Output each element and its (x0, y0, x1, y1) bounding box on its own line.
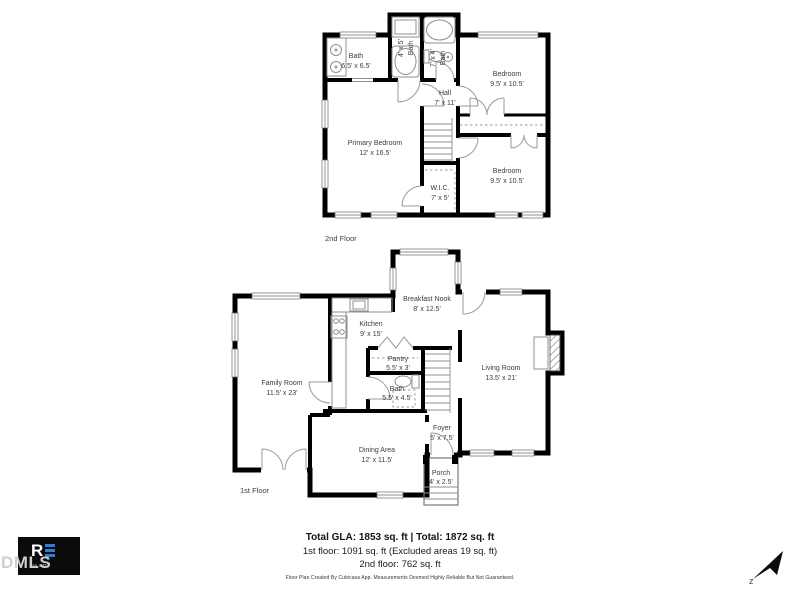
room-dims: 11.5' x 23' (267, 390, 298, 397)
room-dims: 5.5' x 4.5' (382, 395, 412, 402)
room-label-wic: W.I.C. 7' x 5' (430, 185, 449, 202)
first-floor-label: 1st Floor (240, 486, 270, 495)
room-name: Kitchen (359, 321, 382, 328)
room-label-kitchen: Kitchen 9' x 15' (359, 321, 382, 338)
room-dims: 12' x 11.5' (362, 457, 393, 464)
second-floor-plan: Bath 6.5' x 6.5' 4' x 5' Bath 7' x 4' Ba… (322, 15, 548, 243)
area-summary: Total GLA: 1853 sq. ft | Total: 1872 sq.… (0, 531, 800, 581)
room-name: Bath (408, 41, 415, 56)
room-dims: 9' x 15' (360, 331, 382, 338)
room-name: Primary Bedroom (348, 140, 403, 147)
room-name: Bedroom (493, 168, 522, 175)
room-label-pantry: Pantry 5.5' x 3' (386, 356, 410, 372)
room-name: Dining Area (359, 447, 395, 454)
first-floor-plan: Breakfast Nook 8' x 12.5' Kitchen 9' x 1… (232, 249, 562, 505)
bath-pocket-door (352, 79, 373, 82)
room-label-living-room: Living Room 13.5' x 21' (482, 365, 521, 382)
room-dims: 9.5' x 10.5' (490, 81, 523, 88)
room-label-primary-bedroom: Primary Bedroom 12' x 16.5' (348, 140, 403, 157)
room-name: Porch (432, 470, 450, 477)
first-floor-area-line: 1st floor: 1091 sq. ft (Excluded areas 1… (0, 545, 800, 558)
room-label-bath-first: Bath 5.5' x 4.5' (382, 386, 412, 402)
room-dims: 8' x 12.5' (413, 306, 441, 313)
room-name: Bedroom (493, 71, 522, 78)
floorplan-page: Bath 6.5' x 6.5' 4' x 5' Bath 7' x 4' Ba… (0, 0, 800, 600)
room-label-breakfast-nook: Breakfast Nook 8' x 12.5' (403, 296, 451, 313)
second-floor-area-line: 2nd floor: 762 sq. ft (0, 558, 800, 571)
room-label-family-room: Family Room 11.5' x 23' (261, 380, 302, 397)
room-dims: 6.5' x 6.5' (341, 63, 371, 70)
room-name: Living Room (482, 365, 521, 372)
room-name: Breakfast Nook (403, 296, 451, 303)
room-dims: 5.5' x 3' (386, 365, 410, 372)
room-dims: 4' x 5' (398, 39, 405, 57)
room-label-hall: Hall 7' x 11' (434, 90, 455, 107)
second-floor-stairs (424, 118, 452, 162)
mls-watermark: DMLS (1, 553, 51, 573)
room-name: Bath (440, 51, 447, 66)
room-label-bath-small-left: 4' x 5' Bath (398, 39, 415, 57)
room-name: W.I.C. (430, 185, 449, 192)
family-door-opening (261, 467, 307, 473)
room-dims: 7' x 4' (430, 49, 437, 67)
room-name: Foyer (433, 425, 452, 432)
room-label-porch: Porch 4' x 2.5' (429, 470, 453, 486)
room-label-bedroom-bottom: Bedroom 9.5' x 10.5' (490, 168, 523, 185)
room-name: Hall (439, 90, 452, 97)
room-dims: 9.5' x 10.5' (490, 178, 523, 185)
nook-living-opening (462, 289, 486, 295)
second-floor-label: 2nd Floor (325, 234, 357, 243)
disclaimer-text: Floor Plan Created By Cubicasa App. Meas… (0, 575, 800, 581)
room-label-dining-area: Dining Area 12' x 11.5' (359, 447, 395, 464)
fireplace (534, 335, 560, 371)
room-dims: 13.5' x 21' (485, 375, 516, 382)
room-label-bedroom-top: Bedroom 9.5' x 10.5' (490, 71, 523, 88)
room-name: Pantry (388, 356, 409, 363)
room-name: Bath (390, 386, 405, 393)
room-dims: 4' x 2.5' (429, 479, 453, 486)
total-gla-line: Total GLA: 1853 sq. ft | Total: 1872 sq.… (0, 531, 800, 545)
room-dims: 7' x 5' (431, 195, 449, 202)
floor-plan-canvas: Bath 6.5' x 6.5' 4' x 5' Bath 7' x 4' Ba… (0, 0, 800, 600)
room-dims: 5' x 7.5' (430, 435, 454, 442)
room-dims: 7' x 11' (434, 100, 455, 107)
front-door-opening (430, 452, 454, 458)
first-floor-fixtures (331, 298, 419, 408)
room-dims: 12' x 16.5' (359, 150, 390, 157)
first-floor-stairs (425, 348, 450, 413)
room-name: Bath (349, 53, 364, 60)
room-name: Family Room (261, 380, 302, 387)
